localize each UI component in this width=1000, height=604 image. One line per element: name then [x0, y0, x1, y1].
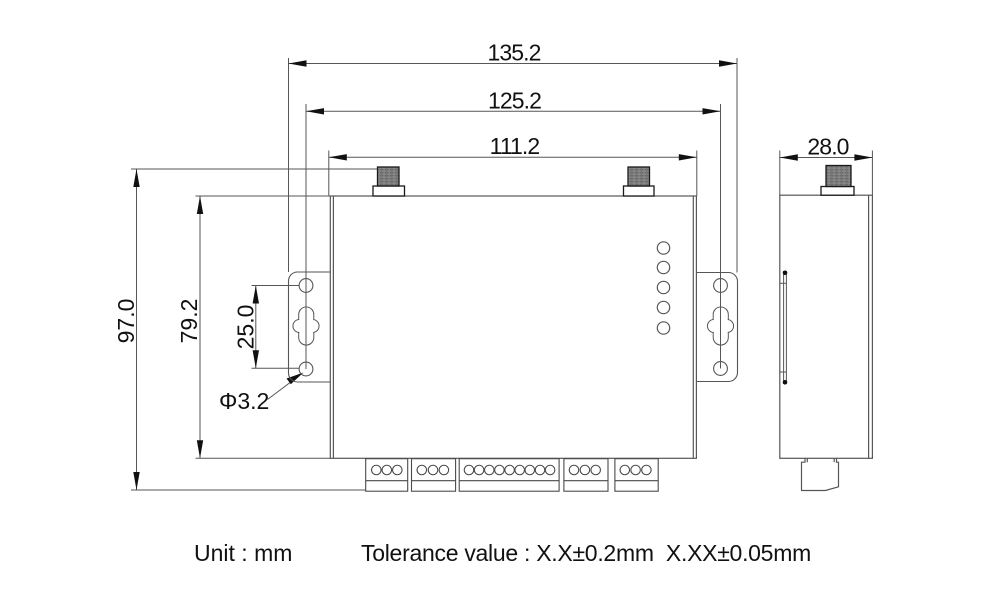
svg-text:Tolerance value : X.X±0.2mm X: Tolerance value : X.X±0.2mm X.XX±0.05mm [361, 540, 811, 566]
svg-text:28.0: 28.0 [807, 134, 848, 160]
svg-text:111.2: 111.2 [490, 133, 540, 159]
svg-text:Φ3.2: Φ3.2 [219, 388, 269, 414]
svg-text:79.2: 79.2 [176, 299, 202, 344]
svg-text:25.0: 25.0 [233, 305, 259, 350]
svg-text:97.0: 97.0 [113, 299, 139, 344]
svg-text:125.2: 125.2 [488, 87, 541, 113]
svg-text:Unit : mm: Unit : mm [194, 540, 292, 566]
svg-text:135.2: 135.2 [487, 40, 540, 66]
